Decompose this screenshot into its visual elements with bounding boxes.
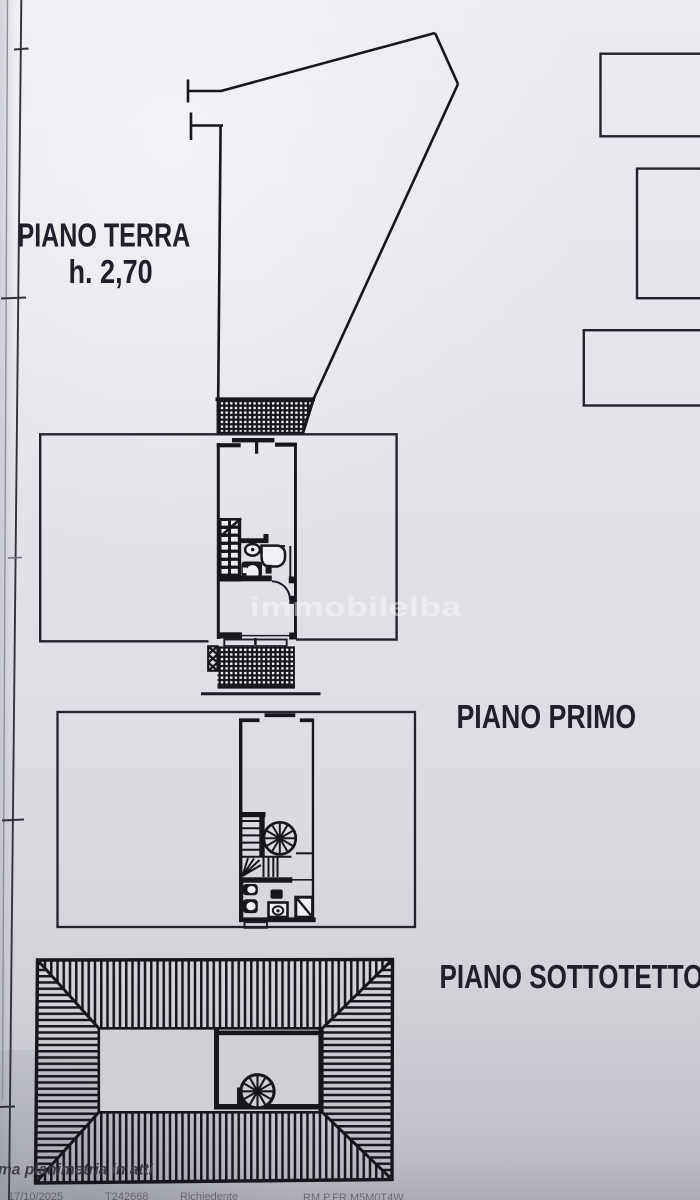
svg-text:ma planimetria in atti: ma planimetria in atti bbox=[0, 1162, 154, 1179]
svg-text:T242668: T242668 bbox=[105, 1191, 148, 1200]
svg-text:PIANO SOTTOTETTO: PIANO SOTTOTETTO bbox=[440, 959, 700, 996]
svg-text:PIANO PRIMO: PIANO PRIMO bbox=[457, 699, 637, 735]
svg-text:Richiedente: Richiedente bbox=[180, 1191, 238, 1200]
svg-text:17/10/2025: 17/10/2025 bbox=[8, 1191, 63, 1200]
svg-text:immobilelba: immobilelba bbox=[250, 592, 462, 622]
svg-text:RM.P.FR.M5M0T4W: RM.P.FR.M5M0T4W bbox=[303, 1192, 404, 1200]
svg-text:h. 2,70: h. 2,70 bbox=[69, 255, 153, 291]
svg-text:PIANO TERRA: PIANO TERRA bbox=[18, 217, 191, 254]
